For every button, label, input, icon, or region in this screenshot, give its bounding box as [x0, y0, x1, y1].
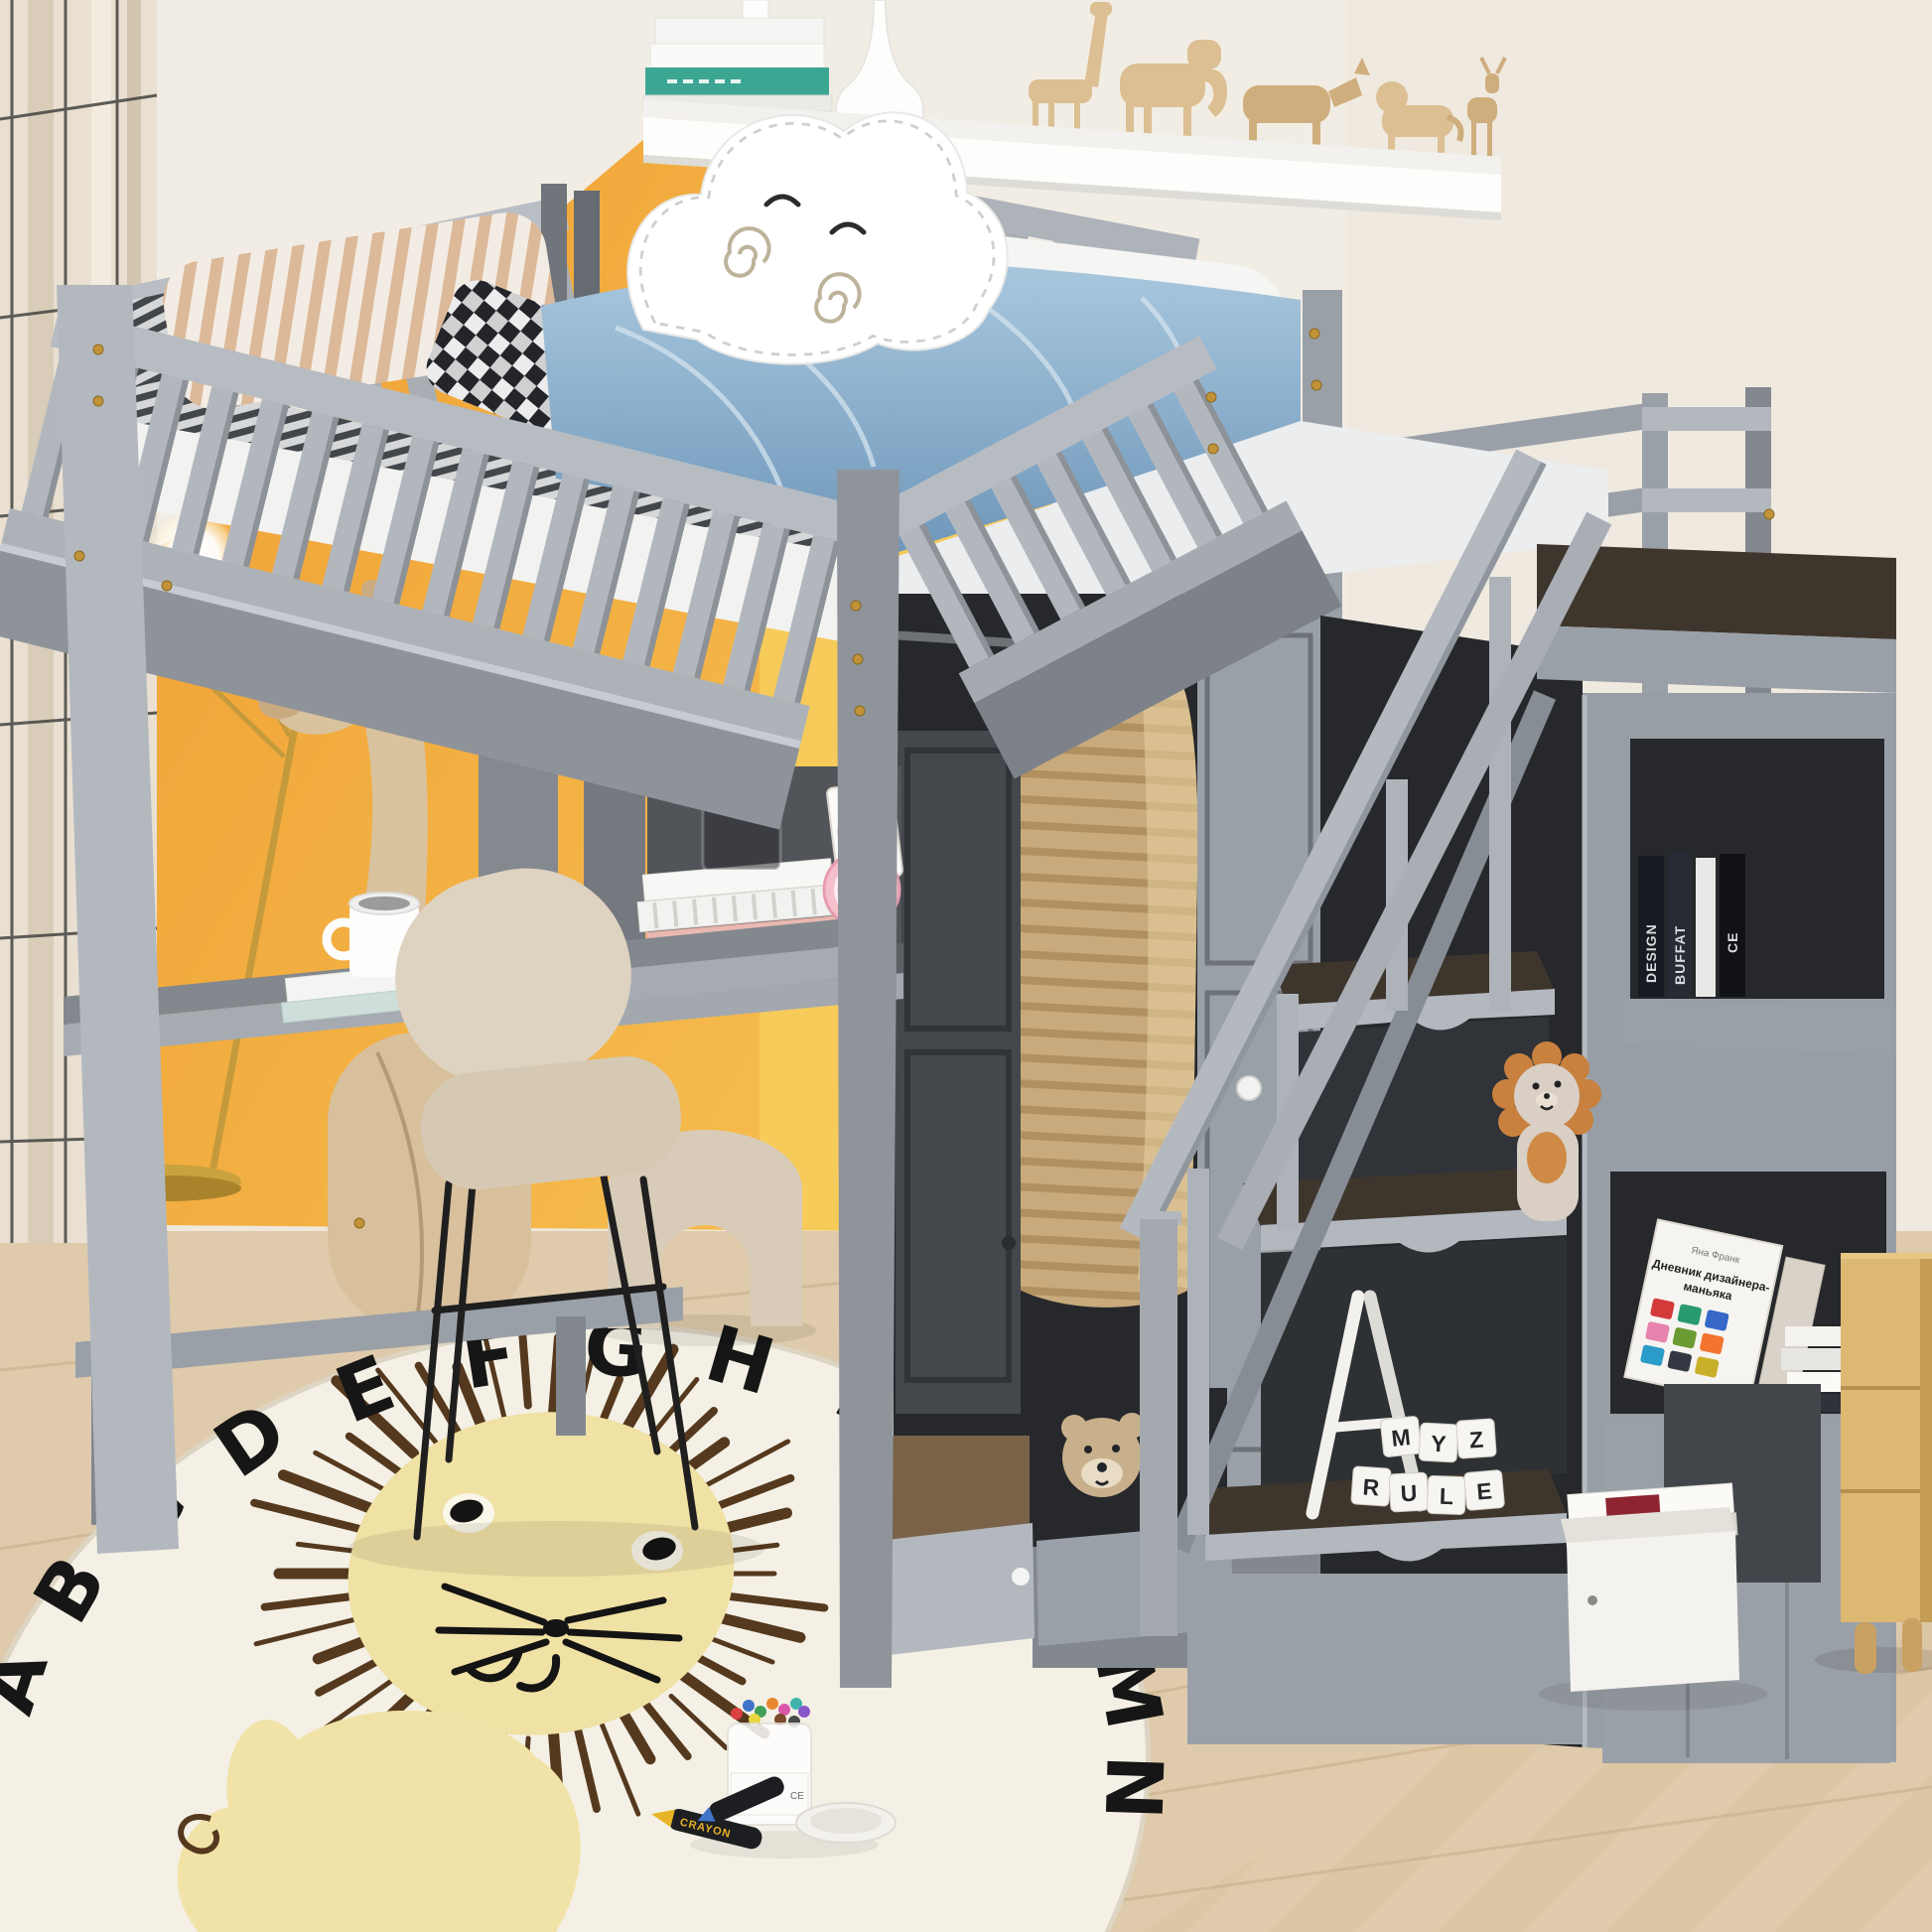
wardrobe-knob — [1237, 1076, 1261, 1100]
letter-block-L: L — [1427, 1475, 1465, 1514]
letter-block-U: U — [1389, 1472, 1429, 1512]
nightstand-leg-b — [1902, 1618, 1922, 1672]
drawer-knob — [1012, 1568, 1030, 1586]
svg-text:Y: Y — [1431, 1431, 1448, 1457]
spine-design: DESIGN — [1643, 923, 1659, 983]
letter-block-Y: Y — [1419, 1423, 1458, 1462]
kids-room-scene: ABCDEFGHIJKLMN — [0, 0, 1932, 1932]
svg-text:R: R — [1362, 1473, 1381, 1500]
rug-letter-N: N — [1087, 1753, 1178, 1821]
svg-text:E: E — [1475, 1477, 1493, 1504]
spine-buffat: BUFFAT — [1672, 925, 1688, 985]
scene-svg: ABCDEFGHIJKLMN — [0, 0, 1932, 1932]
letter-block-M: M — [1380, 1416, 1422, 1457]
white-storage-box — [1561, 1483, 1739, 1692]
svg-text:U: U — [1400, 1480, 1418, 1507]
svg-text:L: L — [1439, 1483, 1453, 1509]
cubby-design-books: DESIGN BUFFAT CE — [1638, 852, 1745, 997]
svg-text:Z: Z — [1468, 1427, 1484, 1453]
wooden-nightstand — [1841, 1253, 1932, 1674]
svg-text:M: M — [1390, 1424, 1412, 1451]
lion-body — [178, 1711, 581, 1932]
tub-ce-mark: CE — [790, 1791, 804, 1802]
stair-newel-post — [1140, 1219, 1177, 1636]
bed-post-front-center — [837, 470, 899, 1688]
spine-ce: CE — [1725, 932, 1740, 953]
desk-leg-mid — [556, 1316, 586, 1436]
stair-bottom-drawer — [1187, 1574, 1583, 1744]
letter-block-R: R — [1351, 1466, 1392, 1507]
letter-block-Z: Z — [1456, 1419, 1497, 1459]
letter-block-E: E — [1463, 1469, 1504, 1510]
wardrobe-door-dark — [896, 731, 1021, 1414]
nightstand-leg-a — [1855, 1622, 1876, 1674]
